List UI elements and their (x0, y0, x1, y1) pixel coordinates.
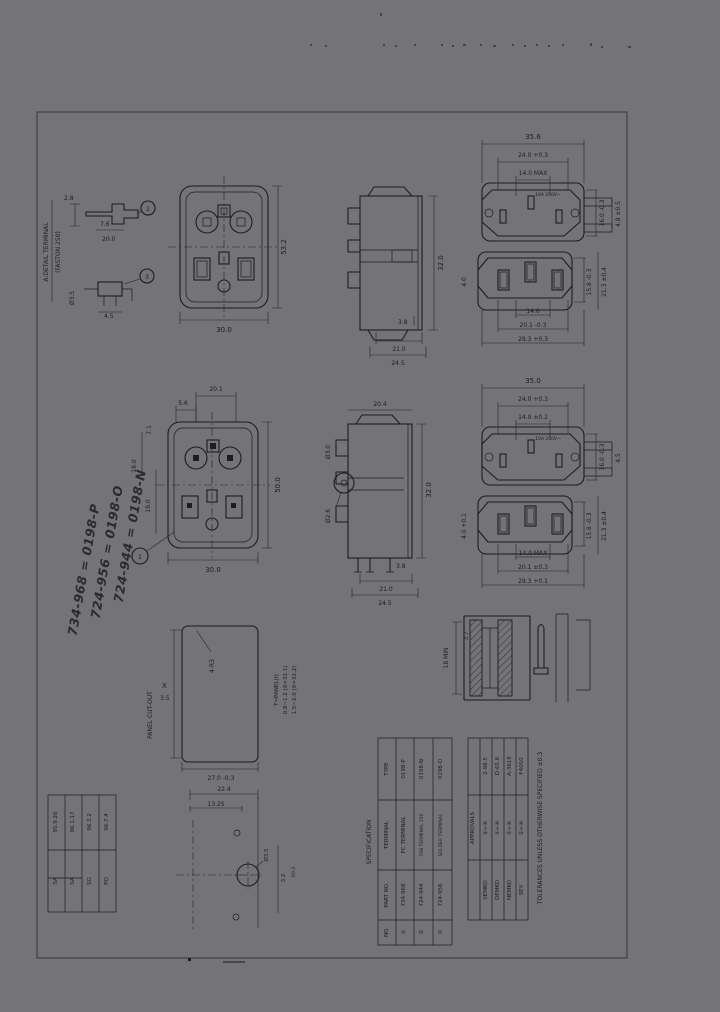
rev-date-1: 95.9.26 (53, 811, 59, 832)
mounting-detail: 22.4 13.25 Ø3.5 3.2 R0.3 (176, 786, 297, 962)
rev-by-3: SG (87, 877, 93, 885)
appr-r4-mark: ②+④ (518, 821, 525, 836)
dim-rear2-right: 50.0 (274, 477, 282, 493)
appr-r3-cert: A-3618 (507, 756, 513, 776)
dim-section-a: 18 MIN (443, 648, 450, 669)
panel-cutout-title: PANEL CUT-OUT (147, 691, 154, 739)
dim-rear2-bottom: 30.0 (205, 566, 221, 574)
inlet-face-1: 10A 250V~ 35.6 24.0 +0.3 14.0 MAX 16.0 -… (482, 133, 622, 241)
spec-h-terminal: TERMINAL (384, 820, 390, 850)
dim-outlet1-b3: 29.3 +0.3 (518, 336, 548, 343)
dim-inlet2-r1: 16.0 -0.3 (599, 443, 606, 470)
dim-side1-c: 24.5 (391, 360, 405, 367)
approvals-table: APPROVALS 2-98.5 D-65.6 A-3618 F4050 ①+④… (468, 738, 528, 920)
spec-r2-mark: ② (418, 929, 425, 934)
outlet-face-1: 14.0 20.1 -0.3 29.3 +0.3 15.8 -0.3 21.3 … (461, 252, 608, 346)
appr-r4-agency: SEV (519, 884, 525, 895)
appr-r4-cert: F4050 (519, 757, 525, 775)
detail-caption-line2: (FASTON 250) (55, 231, 62, 273)
outlet-face-2: 14.0 MAX 20.1 ±0.3 29.3 +0.1 15.8 -0.3 2… (461, 496, 608, 588)
dim-cutout-width: 27.0 -0.3 (208, 775, 235, 782)
dim-side2-right: 32.0 (425, 482, 433, 498)
dim-rear2-l1: 7.1 (146, 425, 153, 435)
rev-by-1: SA (53, 877, 59, 885)
spec-r2-type: 0198-N (419, 759, 425, 779)
side-view-2: 20.4 Ø3.0 Ø2.6 3.8 21.0 24.5 32.0 (325, 401, 433, 607)
spec-r2-terminal: TAB TERMINAL 250 (419, 813, 425, 857)
rating-marking-2: 10A 250V~ (535, 436, 561, 442)
dim-4-5: 4.5 (104, 313, 114, 320)
appr-r2-cert: D-65.6 (495, 756, 501, 775)
appr-r2-agency: DEMKO (495, 879, 501, 900)
dim-x-label: X (162, 682, 167, 690)
dim-corner-radius: 4-R3 (209, 659, 216, 673)
scan-noise (310, 13, 631, 48)
appr-r1-agency: SEMKO (483, 880, 489, 900)
dim-rear2-l3: 19.0 (145, 499, 152, 513)
spec-r1-terminal: PC TERMINAL (401, 816, 407, 854)
spec-r3-mark: ③ (438, 929, 444, 934)
spec-r3-remark: 724-956 (438, 883, 444, 906)
appr-r2-mark: ①+④ (495, 821, 501, 836)
callout-2-number: 2 (146, 206, 150, 213)
dim-mount-v: 3.2 (281, 874, 287, 883)
dim-inlet2-w3: 14.0 ±0.2 (518, 414, 548, 421)
dim-x-sub: 3.5 (160, 695, 170, 702)
panel-note-3: 1.5~2.0 (X=32.2) (292, 666, 298, 715)
dim-outlet2-b2: 20.1 ±0.3 (518, 564, 548, 571)
dim-outlet1-b2: 20.1 -0.3 (520, 322, 547, 329)
callout-1-number: 1 (138, 554, 142, 561)
terminal-detail-3: Ø3.5 4.5 3 (69, 269, 154, 320)
dim-inlet1-w3: 14.0 MAX (519, 170, 548, 177)
dim-outlet2-l: 4.0 +0.1 (461, 513, 468, 539)
dim-inlet1-w: 35.6 (525, 133, 541, 141)
spec-r2-remark: 724-944 (419, 883, 425, 906)
revision-table: 95.9.26 96.1.17 96.3.2 96.7.4 SA SA SG P… (48, 795, 116, 912)
dim-inlet2-w2: 24.0 +0.3 (518, 396, 548, 403)
panel-note-1: T=PANEL(t) (274, 674, 280, 707)
rev-date-2: 96.1.17 (70, 811, 76, 832)
dim-2-8: 2.8 (64, 195, 74, 202)
dim-outlet2-b1: 14.0 MAX (519, 550, 548, 557)
dim-inlet2-w: 35.0 (525, 377, 541, 385)
dim-side2-a: 3.8 (396, 563, 406, 570)
terminal-detail-2: 2.8 7.6 20.0 2 (64, 195, 155, 243)
panel-cutout-view: 4-R3 X 3.5 27.0 -0.3 PANEL CUT-OUT T=PAN… (147, 626, 298, 782)
rear-view-1: 30.0 53.2 (168, 176, 288, 334)
rev-by-2: SA (70, 877, 76, 885)
dim-mount-t2: 13.25 (207, 801, 224, 808)
rating-marking-1: 10A 250V~ (535, 192, 561, 198)
dim-side2-l1: Ø3.0 (325, 445, 332, 459)
side-view-1: 3.8 21.0 24.5 32.0 (348, 187, 445, 367)
dim-rear1-width: 30.0 (216, 326, 232, 334)
dim-rear1-height: 53.2 (280, 239, 288, 255)
spec-r3-terminal: SOLDER TERMINAL (438, 813, 444, 856)
spec-r1-mark: ① (401, 929, 407, 934)
dim-7-6: 7.6 (100, 221, 110, 228)
dim-section-b: 3.7 (464, 631, 470, 640)
inlet-face-2: 10A 250V~ 35.0 24.0 +0.3 14.0 ±0.2 16.0 … (482, 377, 622, 485)
dim-dia-3-5: Ø3.5 (69, 291, 76, 305)
callout-3-number: 3 (145, 274, 149, 281)
dim-side2-top: 20.4 (373, 401, 387, 408)
appr-r1-cert: 2-98.5 (483, 757, 489, 775)
dim-side1-a: 3.8 (398, 319, 408, 326)
dim-inlet2-r2: 4.5 (615, 453, 622, 463)
section-view: 18 MIN 3.7 (443, 614, 590, 702)
dim-outlet1-r1: 15.8 -0.3 (586, 268, 593, 295)
spec-title: SPECIFICATION (366, 820, 373, 865)
spec-r3-type: 0198-O (438, 758, 444, 779)
appr-r3-mark: ②+④ (506, 821, 513, 836)
dim-outlet1-r2: 21.3 ±0.4 (601, 267, 608, 297)
dim-side2-b: 21.0 (379, 586, 393, 593)
dim-mount-hole: Ø3.5 (263, 848, 270, 862)
spec-r1-remark: 734-968 (401, 883, 407, 906)
dim-inlet1-r1: 16.0 -0.3 (599, 199, 606, 226)
spec-h-remark: PART NO. (384, 882, 390, 907)
dim-outlet2-r2: 21.3 ±0.4 (601, 511, 608, 541)
rear-view-2: 20.1 5.6 7.1 19.0 19.0 30.0 50.0 1 (131, 386, 282, 574)
approvals-title: APPROVALS (470, 811, 476, 844)
appr-r3-agency: NEMKO (507, 879, 513, 900)
dim-rear2-t1: 20.1 (209, 386, 223, 393)
dim-20-0: 20.0 (102, 236, 116, 243)
appr-r1-mark: ①+④ (483, 821, 489, 836)
panel-note-2: 0.8~1.2 (X=32.1) (283, 666, 289, 715)
tolerance-note: TOLERANCES UNLESS OTHERWISE SPECIFIED ±0… (537, 752, 544, 906)
spec-r1-type: 0198-P (401, 759, 407, 779)
dim-side1-b: 21.0 (392, 346, 406, 353)
scanned-drawing-sheet: A:DETAIL TERMINAL (FASTON 250) 2.8 7.6 2… (0, 0, 720, 1012)
dim-rear2-t2: 5.6 (178, 400, 188, 407)
dim-mount-r: R0.3 (291, 867, 297, 877)
rev-date-4: 96.7.4 (104, 813, 110, 831)
dim-outlet1-l: 4.0 (461, 277, 468, 287)
dim-mount-t1: 22.4 (217, 786, 231, 793)
dim-side2-c: 24.5 (378, 600, 392, 607)
dim-side2-l2: Ø2.6 (325, 509, 332, 523)
dim-inlet1-r2: 4.8 ±0.5 (615, 201, 622, 227)
dim-side1-height: 32.0 (437, 255, 445, 271)
spec-h-type: TYPE (384, 762, 390, 777)
rev-by-4: PO (104, 877, 110, 885)
dim-inlet1-w2: 24.0 +0.3 (518, 152, 548, 159)
spec-h-mark: NO. (384, 927, 390, 937)
rev-date-3: 96.3.2 (87, 813, 93, 831)
dim-outlet2-r1: 15.8 -0.3 (586, 512, 593, 539)
dim-outlet2-b3: 29.3 +0.1 (518, 578, 548, 585)
detail-caption: A:DETAIL TERMINAL (FASTON 250) (43, 200, 62, 302)
specification-table: SPECIFICATION TYPE TERMINAL PART NO. NO.… (366, 738, 452, 945)
detail-caption-line1: A:DETAIL TERMINAL (43, 222, 50, 282)
dim-outlet1-b1: 14.0 (526, 308, 540, 315)
